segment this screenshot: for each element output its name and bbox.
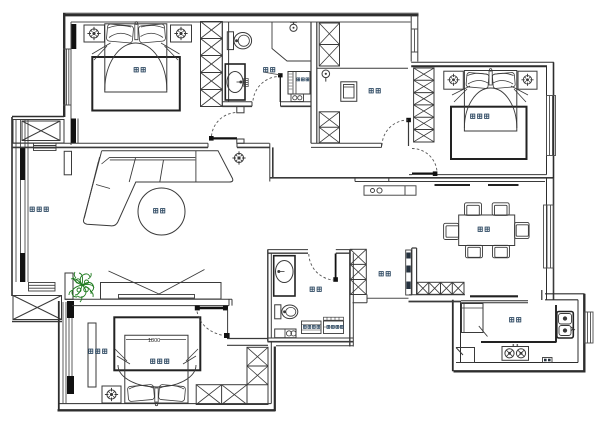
svg-text:1800: 1800 — [148, 338, 160, 344]
